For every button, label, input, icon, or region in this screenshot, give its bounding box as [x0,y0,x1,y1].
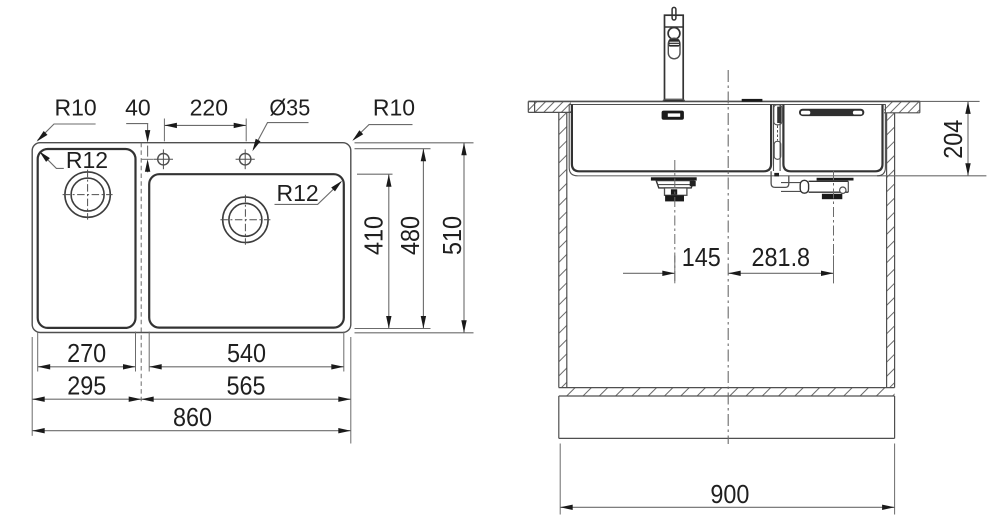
svg-text:540: 540 [227,340,266,368]
svg-text:Ø35: Ø35 [269,95,310,121]
svg-text:220: 220 [190,94,228,120]
svg-text:295: 295 [67,372,106,400]
svg-text:900: 900 [710,481,749,509]
svg-text:410: 410 [360,216,388,255]
svg-text:R10: R10 [373,94,415,120]
svg-text:145: 145 [682,244,721,272]
svg-text:565: 565 [226,372,265,400]
svg-text:R10: R10 [54,94,96,120]
svg-text:510: 510 [439,216,467,255]
svg-text:281.8: 281.8 [752,244,811,272]
svg-text:270: 270 [67,340,106,368]
svg-text:204: 204 [940,120,968,159]
svg-text:R12: R12 [66,147,108,173]
svg-text:40: 40 [125,94,151,120]
svg-text:480: 480 [397,216,425,255]
svg-text:860: 860 [173,404,212,432]
svg-text:R12: R12 [276,180,318,206]
